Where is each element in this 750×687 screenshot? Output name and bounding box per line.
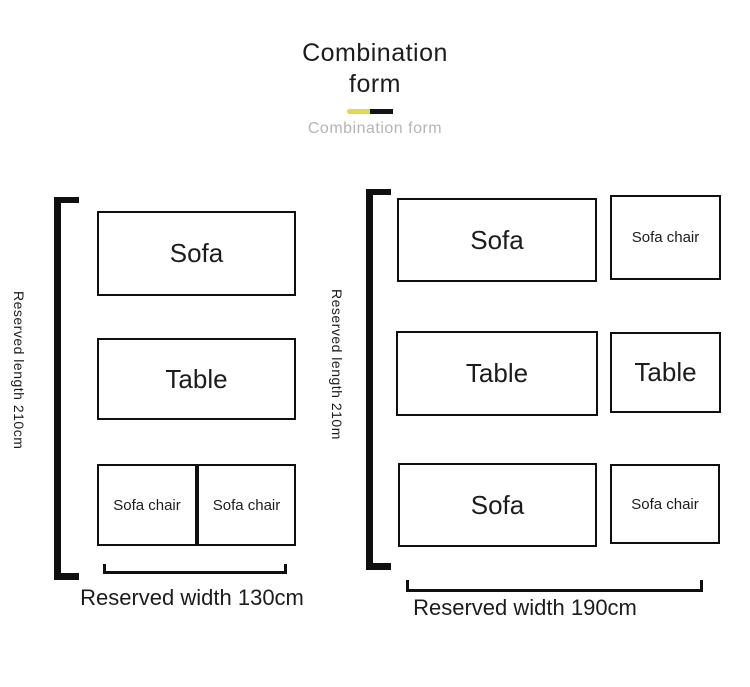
left-width-bracket [103,564,287,574]
right-sofa-box-top: Sofa [397,198,597,282]
left-sofa-chair-box-2: Sofa chair [197,464,296,546]
right-sofa-chair-box-top: Sofa chair [610,195,721,280]
left-table-box: Table [97,338,296,420]
left-table-label: Table [165,364,227,395]
divider-yellow-segment [347,109,370,114]
page-title: Combination form [0,38,750,100]
section-subtitle: Combination form [0,120,750,138]
left-sofa-label: Sofa [170,238,224,269]
left-sofa-chair-box-1: Sofa chair [97,464,197,546]
right-width-label: Reserved width 190cm [404,595,646,621]
right-sofa-label-bottom: Sofa [471,490,525,521]
right-width-bracket [406,580,703,592]
left-width-label: Reserved width 130cm [72,585,312,611]
right-sofa-label-top: Sofa [470,225,524,256]
divider-black-segment [370,109,393,114]
right-sofa-chair-label-top: Sofa chair [632,229,700,246]
right-sofa-chair-box-bottom: Sofa chair [610,464,720,544]
combination-form-diagram: Combination form Combination form Reserv… [0,0,750,687]
right-table-label-large: Table [466,358,528,389]
left-sofa-box: Sofa [97,211,296,296]
page-title-line2: form [0,69,750,100]
page-title-line1: Combination [0,38,750,69]
right-length-bracket [366,189,391,570]
left-sofa-chair-label-2: Sofa chair [213,497,281,514]
right-table-box-large: Table [396,331,598,416]
left-length-bracket [54,197,79,580]
right-sofa-box-bottom: Sofa [398,463,597,547]
right-table-box-small: Table [610,332,721,413]
left-sofa-chair-label-1: Sofa chair [113,497,181,514]
right-sofa-chair-label-bottom: Sofa chair [631,496,699,513]
title-divider [347,109,393,114]
left-length-label: Reserved length 210cm [11,291,27,449]
right-length-label: Reserved length 210m [329,289,345,440]
right-table-label-small: Table [634,357,696,388]
